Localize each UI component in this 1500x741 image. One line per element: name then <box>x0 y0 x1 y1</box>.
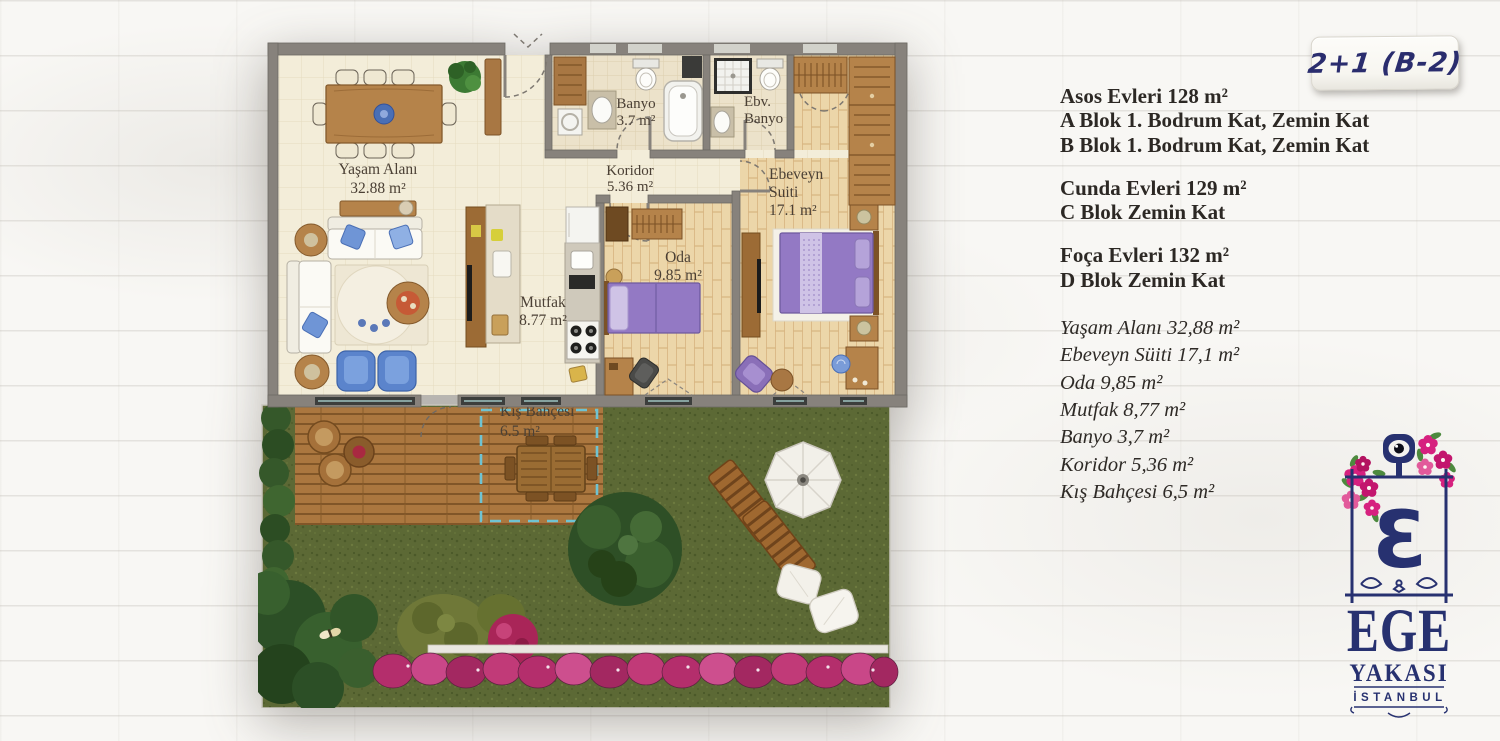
label-master: Ebeveyn <box>769 166 823 183</box>
label-living-room: Yaşam Alanı <box>339 161 419 178</box>
floorplan-poster: Kış Bahçesi 6.5 m² <box>0 0 1500 741</box>
label-master-2: Suiti <box>769 184 799 201</box>
cunda-block-c: C Blok Zemin Kat <box>1060 200 1490 224</box>
wardrobe-column <box>849 57 895 205</box>
tv-wall-decor <box>471 225 481 237</box>
washbasin <box>592 97 612 123</box>
entry-closet <box>554 57 586 135</box>
logo-name-ege: EGE <box>1347 596 1451 664</box>
brand-logo: Ɛ EGE YAKASI İSTANBUL <box>1338 421 1460 719</box>
label-kitchen: Mutfak <box>520 294 566 311</box>
apartment: Yaşam Alanı 32.88 m² <box>268 34 907 407</box>
bathtub <box>664 81 702 141</box>
area-living: Yaşam Alanı 32,88 m² <box>1060 315 1490 342</box>
logo-rule-bottom <box>1351 707 1447 717</box>
parasol <box>765 442 841 518</box>
asos-block-b: B Blok 1. Bodrum Kat, Zemin Kat <box>1060 133 1490 157</box>
corner-shelf <box>606 207 628 241</box>
label-winter-garden-area: 6.5 m² <box>500 423 540 440</box>
area-bedroom: Oda 9,85 m² <box>1060 370 1490 397</box>
single-bed <box>604 281 700 335</box>
asos-block-a: A Blok 1. Bodrum Kat, Zemin Kat <box>1060 108 1490 132</box>
label-master-area: 17.1 m² <box>769 202 817 219</box>
flower-bed-curb <box>428 645 888 653</box>
master-bed <box>780 231 879 315</box>
floor-plan: Kış Bahçesi 6.5 m² <box>258 33 908 708</box>
label-bedroom: Oda <box>665 249 691 266</box>
unit-type-badge: 2+1 (B-2) <box>1311 35 1460 91</box>
logo-city: İSTANBUL <box>1353 691 1446 704</box>
unit-type-label: 2+1 (B-2) <box>1306 47 1463 80</box>
label-corridor: Koridor <box>606 163 654 179</box>
master-bench <box>846 347 878 389</box>
corridor: Koridor 5.36 m² <box>606 163 654 195</box>
label-living-room-area: 32.88 m² <box>350 180 406 197</box>
deck-dining-set <box>505 436 597 501</box>
area-master-suite: Ebeveyn Süiti 17,1 m² <box>1060 342 1490 369</box>
round-rug <box>832 355 850 373</box>
garden-tree <box>568 492 682 606</box>
cunda-title: Cunda Evleri 129 m² <box>1060 176 1490 200</box>
logo-monogram: Ɛ <box>1373 496 1427 586</box>
evil-eye-icon <box>1383 434 1415 477</box>
floor-plan-drawing: Kış Bahçesi 6.5 m² <box>258 33 908 708</box>
entry-console <box>485 59 501 135</box>
brand-logo-art: Ɛ EGE YAKASI İSTANBUL <box>1338 421 1460 719</box>
pouf <box>771 369 793 391</box>
label-ensuite: Ebv. <box>744 94 771 110</box>
label-ensuite-2: Banyo <box>744 111 783 127</box>
oven <box>569 275 595 289</box>
logo-name-yakasi: YAKASI <box>1349 659 1448 687</box>
label-bathroom: Banyo <box>616 96 655 112</box>
bath-niche <box>682 56 702 78</box>
master-tv <box>757 259 761 313</box>
kitchen-sink <box>571 251 593 269</box>
fridge <box>566 207 599 243</box>
shower <box>714 58 752 94</box>
foca-evleri-group: Foça Evleri 132 m² D Blok Zemin Kat <box>1060 243 1490 292</box>
cunda-evleri-group: Cunda Evleri 129 m² C Blok Zemin Kat <box>1060 176 1490 225</box>
label-bathroom-area: 3.7 m² <box>617 113 656 129</box>
asos-title: Asos Evleri 128 m² <box>1060 84 1490 108</box>
foca-title: Foça Evleri 132 m² <box>1060 243 1490 267</box>
label-kitchen-area: 8.77 m² <box>519 312 567 329</box>
foca-block-d: D Blok Zemin Kat <box>1060 268 1490 292</box>
asos-evleri-group: Asos Evleri 128 m² A Blok 1. Bodrum Kat,… <box>1060 84 1490 157</box>
ensuite-sink <box>711 107 734 137</box>
label-corridor-area: 5.36 m² <box>607 179 654 195</box>
tv <box>467 265 472 321</box>
label-bedroom-area: 9.85 m² <box>654 267 702 284</box>
garden: Kış Bahçesi 6.5 m² <box>258 403 898 708</box>
